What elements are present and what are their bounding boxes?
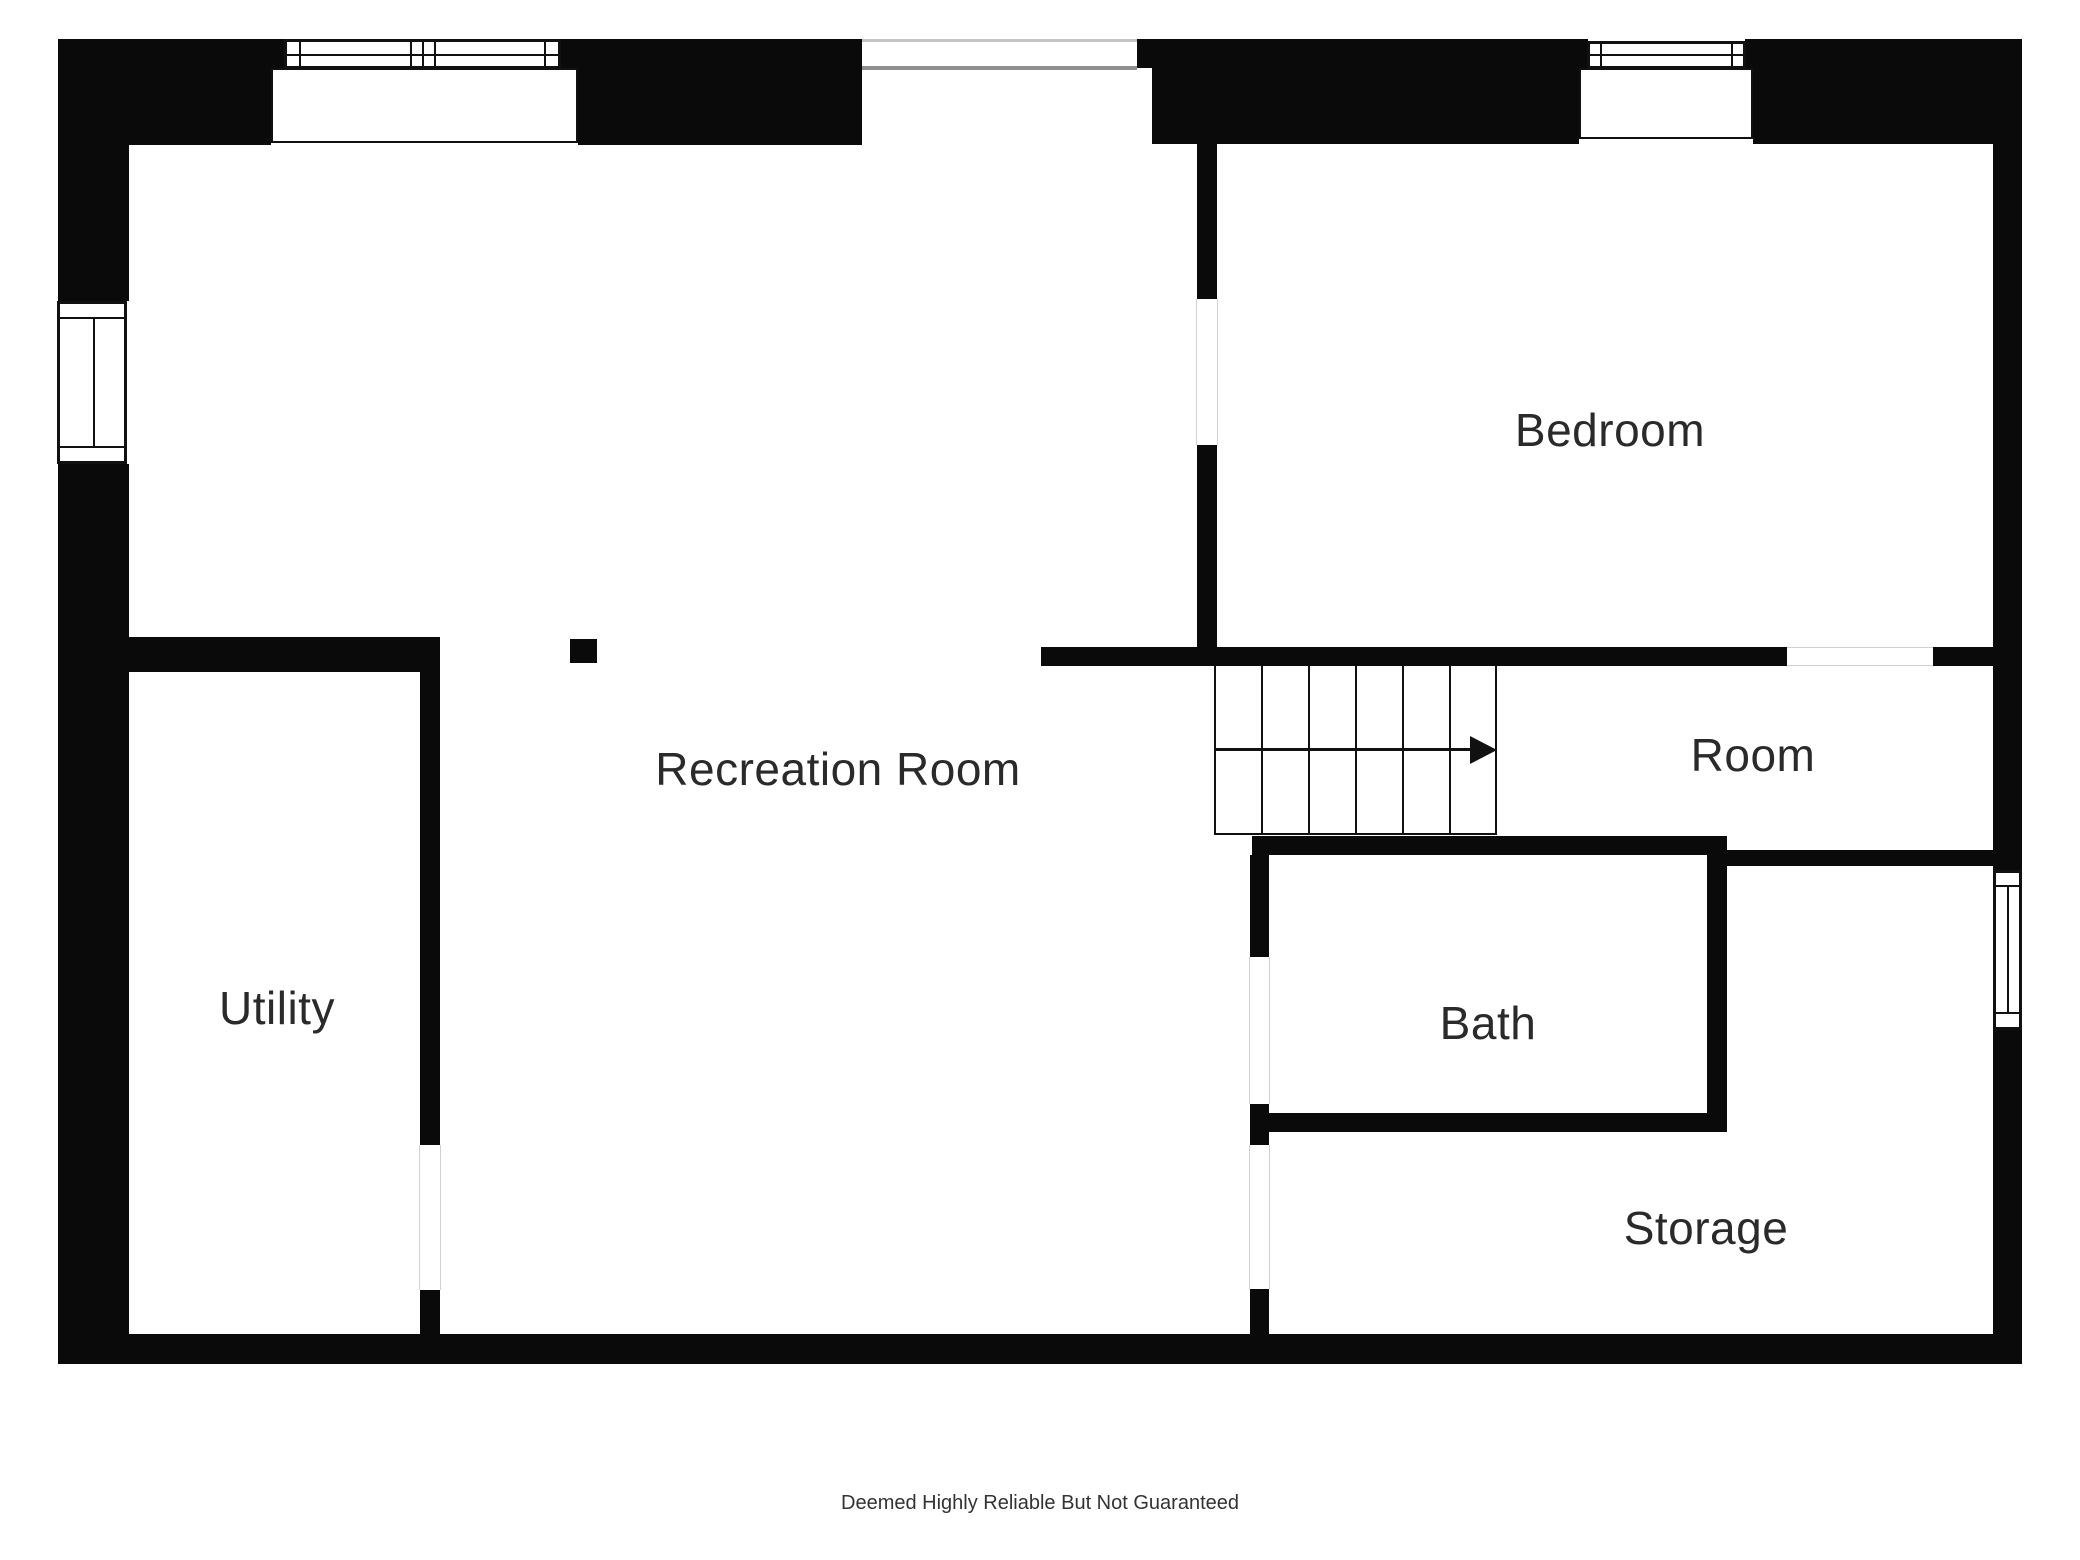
room-label-bath: Bath [1440,996,1537,1050]
support-post [570,639,597,663]
wall-right-upper [1993,40,2022,870]
window-left-icon [57,301,127,464]
disclaimer-text: Deemed Highly Reliable But Not Guarantee… [0,1492,2080,1515]
wall-bottom [58,1334,2022,1364]
room-label-storage: Storage [1624,1201,1789,1255]
wall-bath-left-upper [1250,855,1269,957]
room-pass-through-opening [1787,647,1933,666]
wall-bath-bottom [1269,1113,1727,1132]
wall-sliver [560,39,578,69]
floor-plan: Bedroom Room Recreation Room Utility Bat… [0,0,2080,1560]
wall-bath-top [1252,836,1727,855]
wall-bath-right [1707,836,1727,1132]
wall-top-left-block [58,39,271,145]
bath-door-opening [1249,957,1270,1104]
wall-right-lower [1993,1030,2022,1364]
stairs-direction-arrow-icon [1216,748,1472,751]
window-top-left-icon [284,39,561,69]
storage-door-opening [1249,1145,1270,1289]
wall-left-lower [58,464,129,1364]
wall-utility-right-lower [420,1290,440,1334]
wall-storage-left-lower [1250,1289,1269,1334]
stair-base-line [1214,833,1497,835]
wall-room-storage-divider [1727,850,1993,866]
wall-sliver [271,39,285,69]
room-label-utility: Utility [219,981,335,1035]
stairs-direction-arrowhead-icon [1470,736,1497,764]
wall-left-upper [58,145,129,301]
wall-utility-top [129,637,440,672]
utility-door-opening [419,1145,441,1290]
wall-top-right-a [1152,39,1579,144]
wall-utility-right-upper [420,672,440,1145]
window-alcove [271,68,578,143]
wall-notch [1137,39,1152,68]
window-alcove [1579,68,1753,139]
wall-bedroom-bottom [1041,647,1787,666]
room-label-bedroom: Bedroom [1515,403,1705,457]
window-right-icon [1993,870,2022,1030]
wall-bedroom-left-lower [1197,445,1217,647]
room-label-room: Room [1691,728,1816,782]
room-label-recreation-room: Recreation Room [655,742,1020,796]
wall-bedroom-left-upper [1197,144,1217,299]
wall-bath-left-corner [1250,1104,1269,1145]
wall-top-middle [578,39,862,145]
bedroom-door-opening [1196,299,1218,445]
wall-bedroom-bottom-right [1933,647,2022,666]
top-opening-inner-line [862,66,1137,70]
window-top-right-icon [1587,41,1746,69]
wall-top-right-b [1753,39,2022,144]
top-opening-outer-line [862,39,1137,42]
staircase [1214,666,1497,835]
wall-sliver [1745,39,1753,69]
